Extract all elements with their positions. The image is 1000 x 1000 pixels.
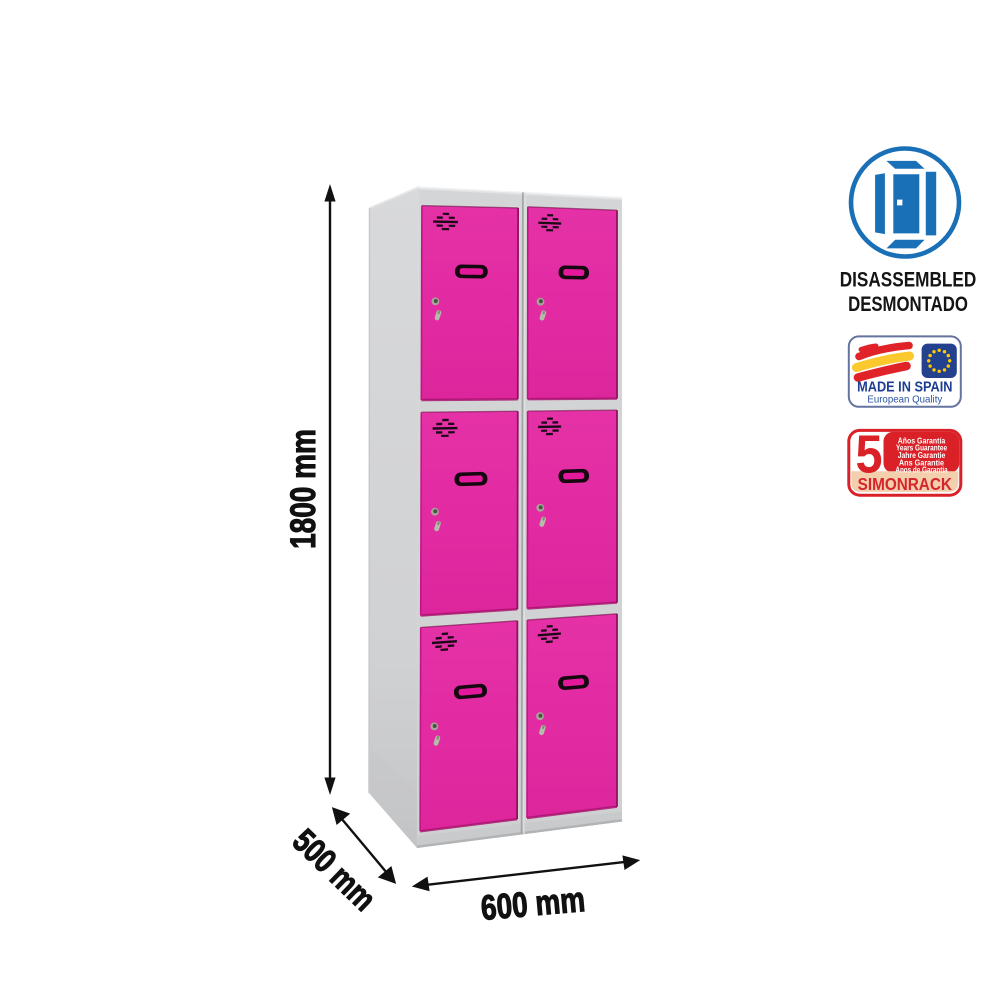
svg-text:DESMONTADO: DESMONTADO — [848, 293, 968, 316]
svg-text:SIMONRACK: SIMONRACK — [858, 474, 952, 494]
svg-text:MADE IN SPAIN: MADE IN SPAIN — [857, 379, 952, 395]
svg-text:1800 mm: 1800 mm — [283, 429, 323, 549]
svg-text:European Quality: European Quality — [867, 394, 942, 405]
svg-text:DISASSEMBLED: DISASSEMBLED — [840, 268, 977, 292]
